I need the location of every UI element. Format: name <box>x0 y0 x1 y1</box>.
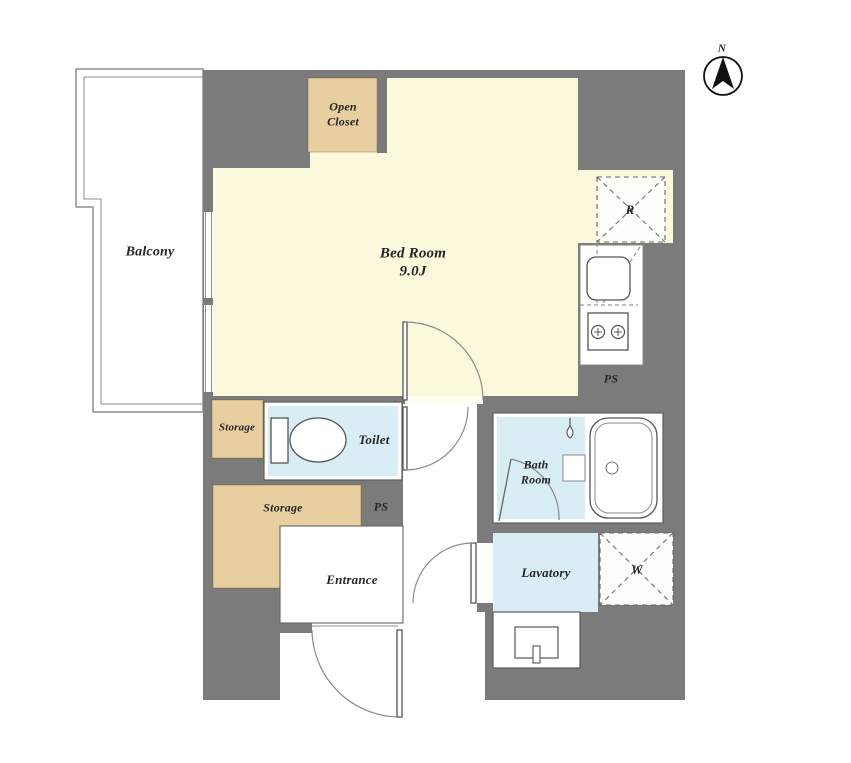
balcony-area <box>76 69 203 412</box>
entrance-doorway <box>312 623 402 633</box>
closet-partition-wall <box>377 77 387 153</box>
entrance-label: Entrance <box>326 572 377 588</box>
washbasin <box>493 612 580 668</box>
exterior-notch <box>280 633 485 700</box>
ps-hall-label: PS <box>374 500 388 515</box>
bath-room-label: Bath Room <box>521 457 551 486</box>
open-closet-label: Open Closet <box>327 99 359 128</box>
bedroom-name: Bed Room <box>380 245 446 263</box>
balcony-label: Balcony <box>126 243 175 260</box>
lavatory-doorway <box>477 543 493 603</box>
open-closet-label-line1: Open <box>327 99 359 114</box>
toilet-fixture <box>271 418 346 463</box>
bath-room-label-line2: Room <box>521 472 551 487</box>
bathtub <box>590 418 657 518</box>
lavatory-label: Lavatory <box>521 565 570 581</box>
ps-kitchen-label: PS <box>604 372 618 387</box>
north-compass <box>704 57 742 95</box>
bedroom-size: 9.0J <box>380 263 446 281</box>
bedroom-label: Bed Room 9.0J <box>380 245 446 282</box>
storage-large-label: Storage <box>263 501 302 516</box>
bedroom-doorway <box>405 396 483 404</box>
washer-label: W <box>631 562 643 578</box>
north-label: N <box>718 42 726 55</box>
bath-room-label-line1: Bath <box>521 457 551 472</box>
toilet-label: Toilet <box>358 432 389 448</box>
open-closet-label-line2: Closet <box>327 114 359 129</box>
kitchen-sink <box>587 257 630 300</box>
balcony-window <box>204 212 213 392</box>
floor-plan-drawing <box>0 0 851 763</box>
stove <box>588 313 628 350</box>
bath-counter <box>563 455 585 481</box>
kitchen-counter <box>580 243 643 365</box>
refrigerator-label: R <box>626 202 635 218</box>
hallway-area <box>403 404 477 633</box>
bathroom-area <box>493 413 663 523</box>
floor-plan: Balcony Open Closet Bed Room 9.0J R PS S… <box>0 0 851 763</box>
storage-small-label: Storage <box>219 421 255 434</box>
